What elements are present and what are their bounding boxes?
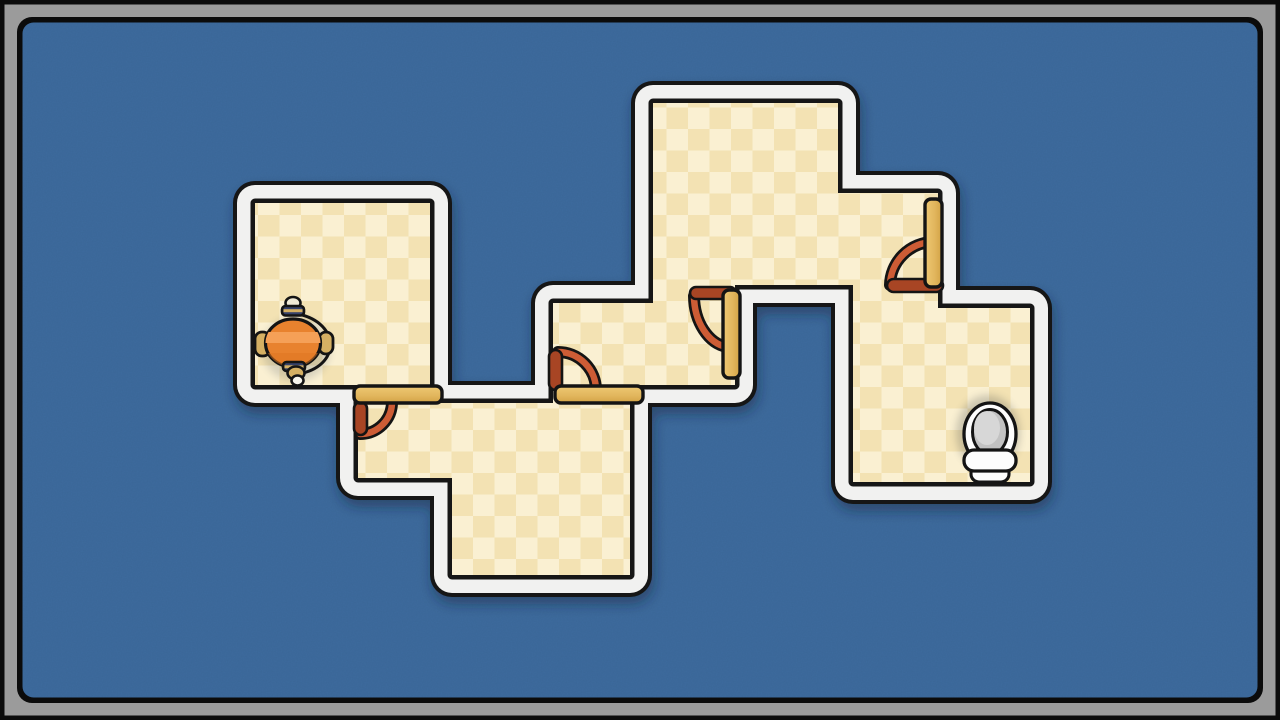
door-4[interactable]: [925, 199, 942, 287]
door-1-hinge-stub: [354, 402, 367, 435]
character-top-band-stripe: [284, 309, 303, 312]
door-1-bar[interactable]: [354, 386, 442, 403]
game-scene: [0, 0, 1280, 720]
game-stage: [0, 0, 1280, 720]
door-2[interactable]: [555, 386, 643, 403]
toilet-bowl-highlight: [974, 411, 1000, 445]
door-3[interactable]: [723, 290, 740, 378]
door-2-hinge-stub: [549, 350, 562, 390]
door-3-bar[interactable]: [723, 290, 740, 378]
door-2-bar[interactable]: [555, 386, 643, 403]
toilet[interactable]: [956, 395, 1020, 482]
door-4-bar[interactable]: [925, 199, 942, 287]
toilet-seat-front: [964, 450, 1016, 471]
character-bottom-tip: [292, 376, 304, 386]
door-1[interactable]: [354, 386, 442, 403]
